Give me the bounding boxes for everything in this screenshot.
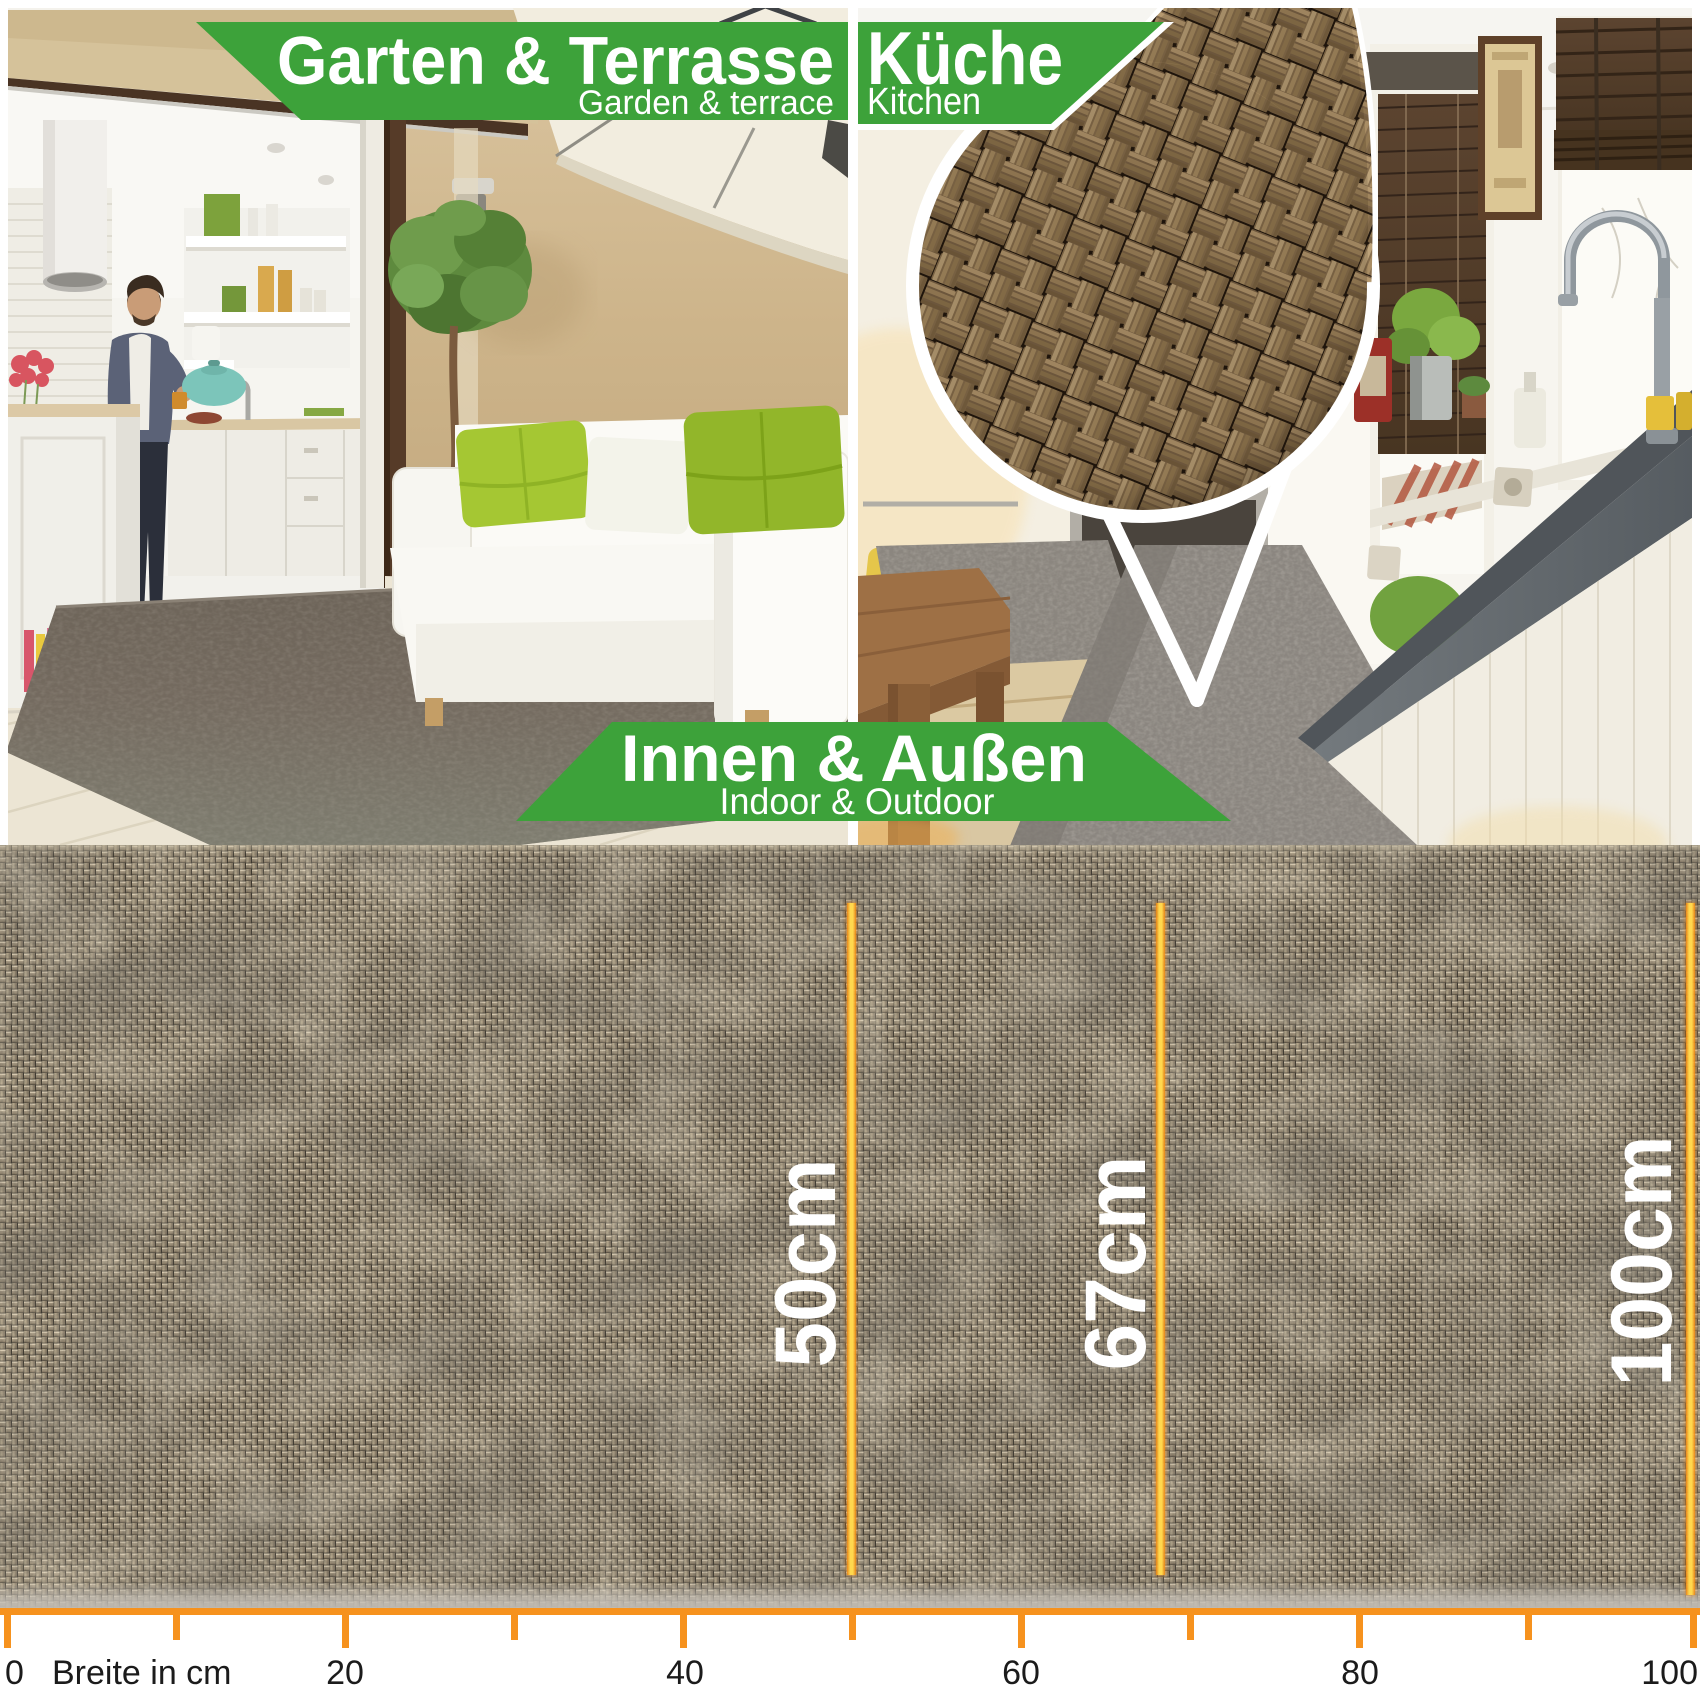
- svg-text:50cm: 50cm: [758, 1159, 854, 1368]
- svg-text:67cm: 67cm: [1068, 1156, 1164, 1371]
- svg-text:Kitchen: Kitchen: [867, 81, 981, 123]
- svg-text:Garden & terrace: Garden & terrace: [578, 84, 834, 122]
- svg-text:100cm: 100cm: [1594, 1136, 1690, 1387]
